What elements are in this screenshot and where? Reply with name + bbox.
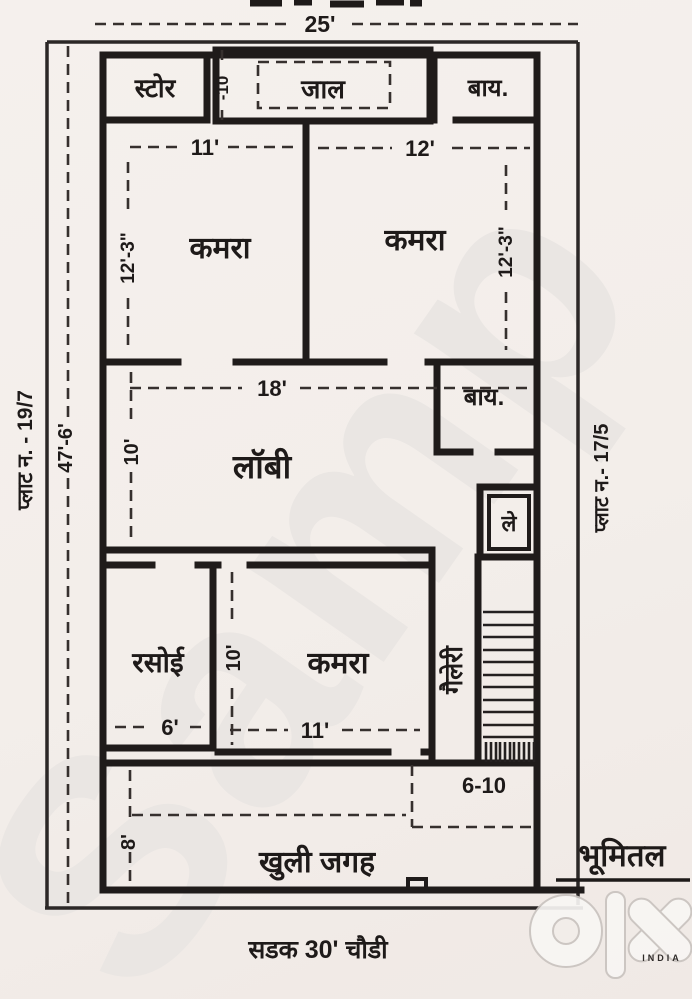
store-label: स्टोर [134,73,177,103]
bedroom-left-label: कमरा [188,232,251,265]
olx-india-label: INDIA [642,953,682,963]
stair-treads [483,612,535,737]
bath-top-label: बाय. [467,75,509,102]
lower-room-width-label: 11' [301,718,330,743]
olx-watermark: INDIA [530,892,692,978]
bedroom-right-width-label: 12' [405,136,435,161]
bedroom-left-width-label: 11' [191,135,220,160]
open-space-label: खुली जगह [258,844,376,881]
kitchen-width-label: 6' [161,715,178,740]
jaal-label: जाल [300,74,346,104]
olx-l-icon [606,892,625,978]
lobby-label: लॉबी [232,447,293,485]
lower-room-height-label: 10' [223,644,245,671]
open-space-height-label: 8' [118,834,140,850]
left-boundary-dim-label: 47'-6' [55,423,77,473]
road-label: सडक 30' चौडी [247,935,389,964]
gallery-label: गैलेरी [439,645,468,695]
lower-room-label: कमरा [306,647,369,680]
stairs-area-dim-label: 6-10 [462,773,506,798]
lobby-height-label: 10' [121,438,143,465]
latrine-label: ले [501,510,518,536]
jaal-side-dim-label: -10 [213,76,232,101]
olx-o-hole-icon [553,918,579,944]
bath-mid-label: बाय. [463,384,505,411]
ground-floor-label: भूमितल [578,837,666,876]
bedroom-right-height-label: 12'-3" [496,226,517,278]
top-cutoff-marks [250,2,422,4]
stair-hatch [486,742,534,762]
floor-plan-page: Samp [0,0,692,999]
top-dim-label: 25' [304,11,335,37]
right-plot-label: प्लाट न.- 17/5 [591,424,613,534]
kitchen-label: रसोई [131,646,185,678]
staircase [483,612,535,762]
lobby-width-label: 18' [257,376,287,401]
left-plot-label: प्लाट न. - 19/7 [14,390,37,511]
floor-plan-canvas: Samp [0,0,692,999]
bedroom-left-height-label: 12'-3" [118,232,139,284]
bedroom-right-label: कमरा [383,224,446,257]
